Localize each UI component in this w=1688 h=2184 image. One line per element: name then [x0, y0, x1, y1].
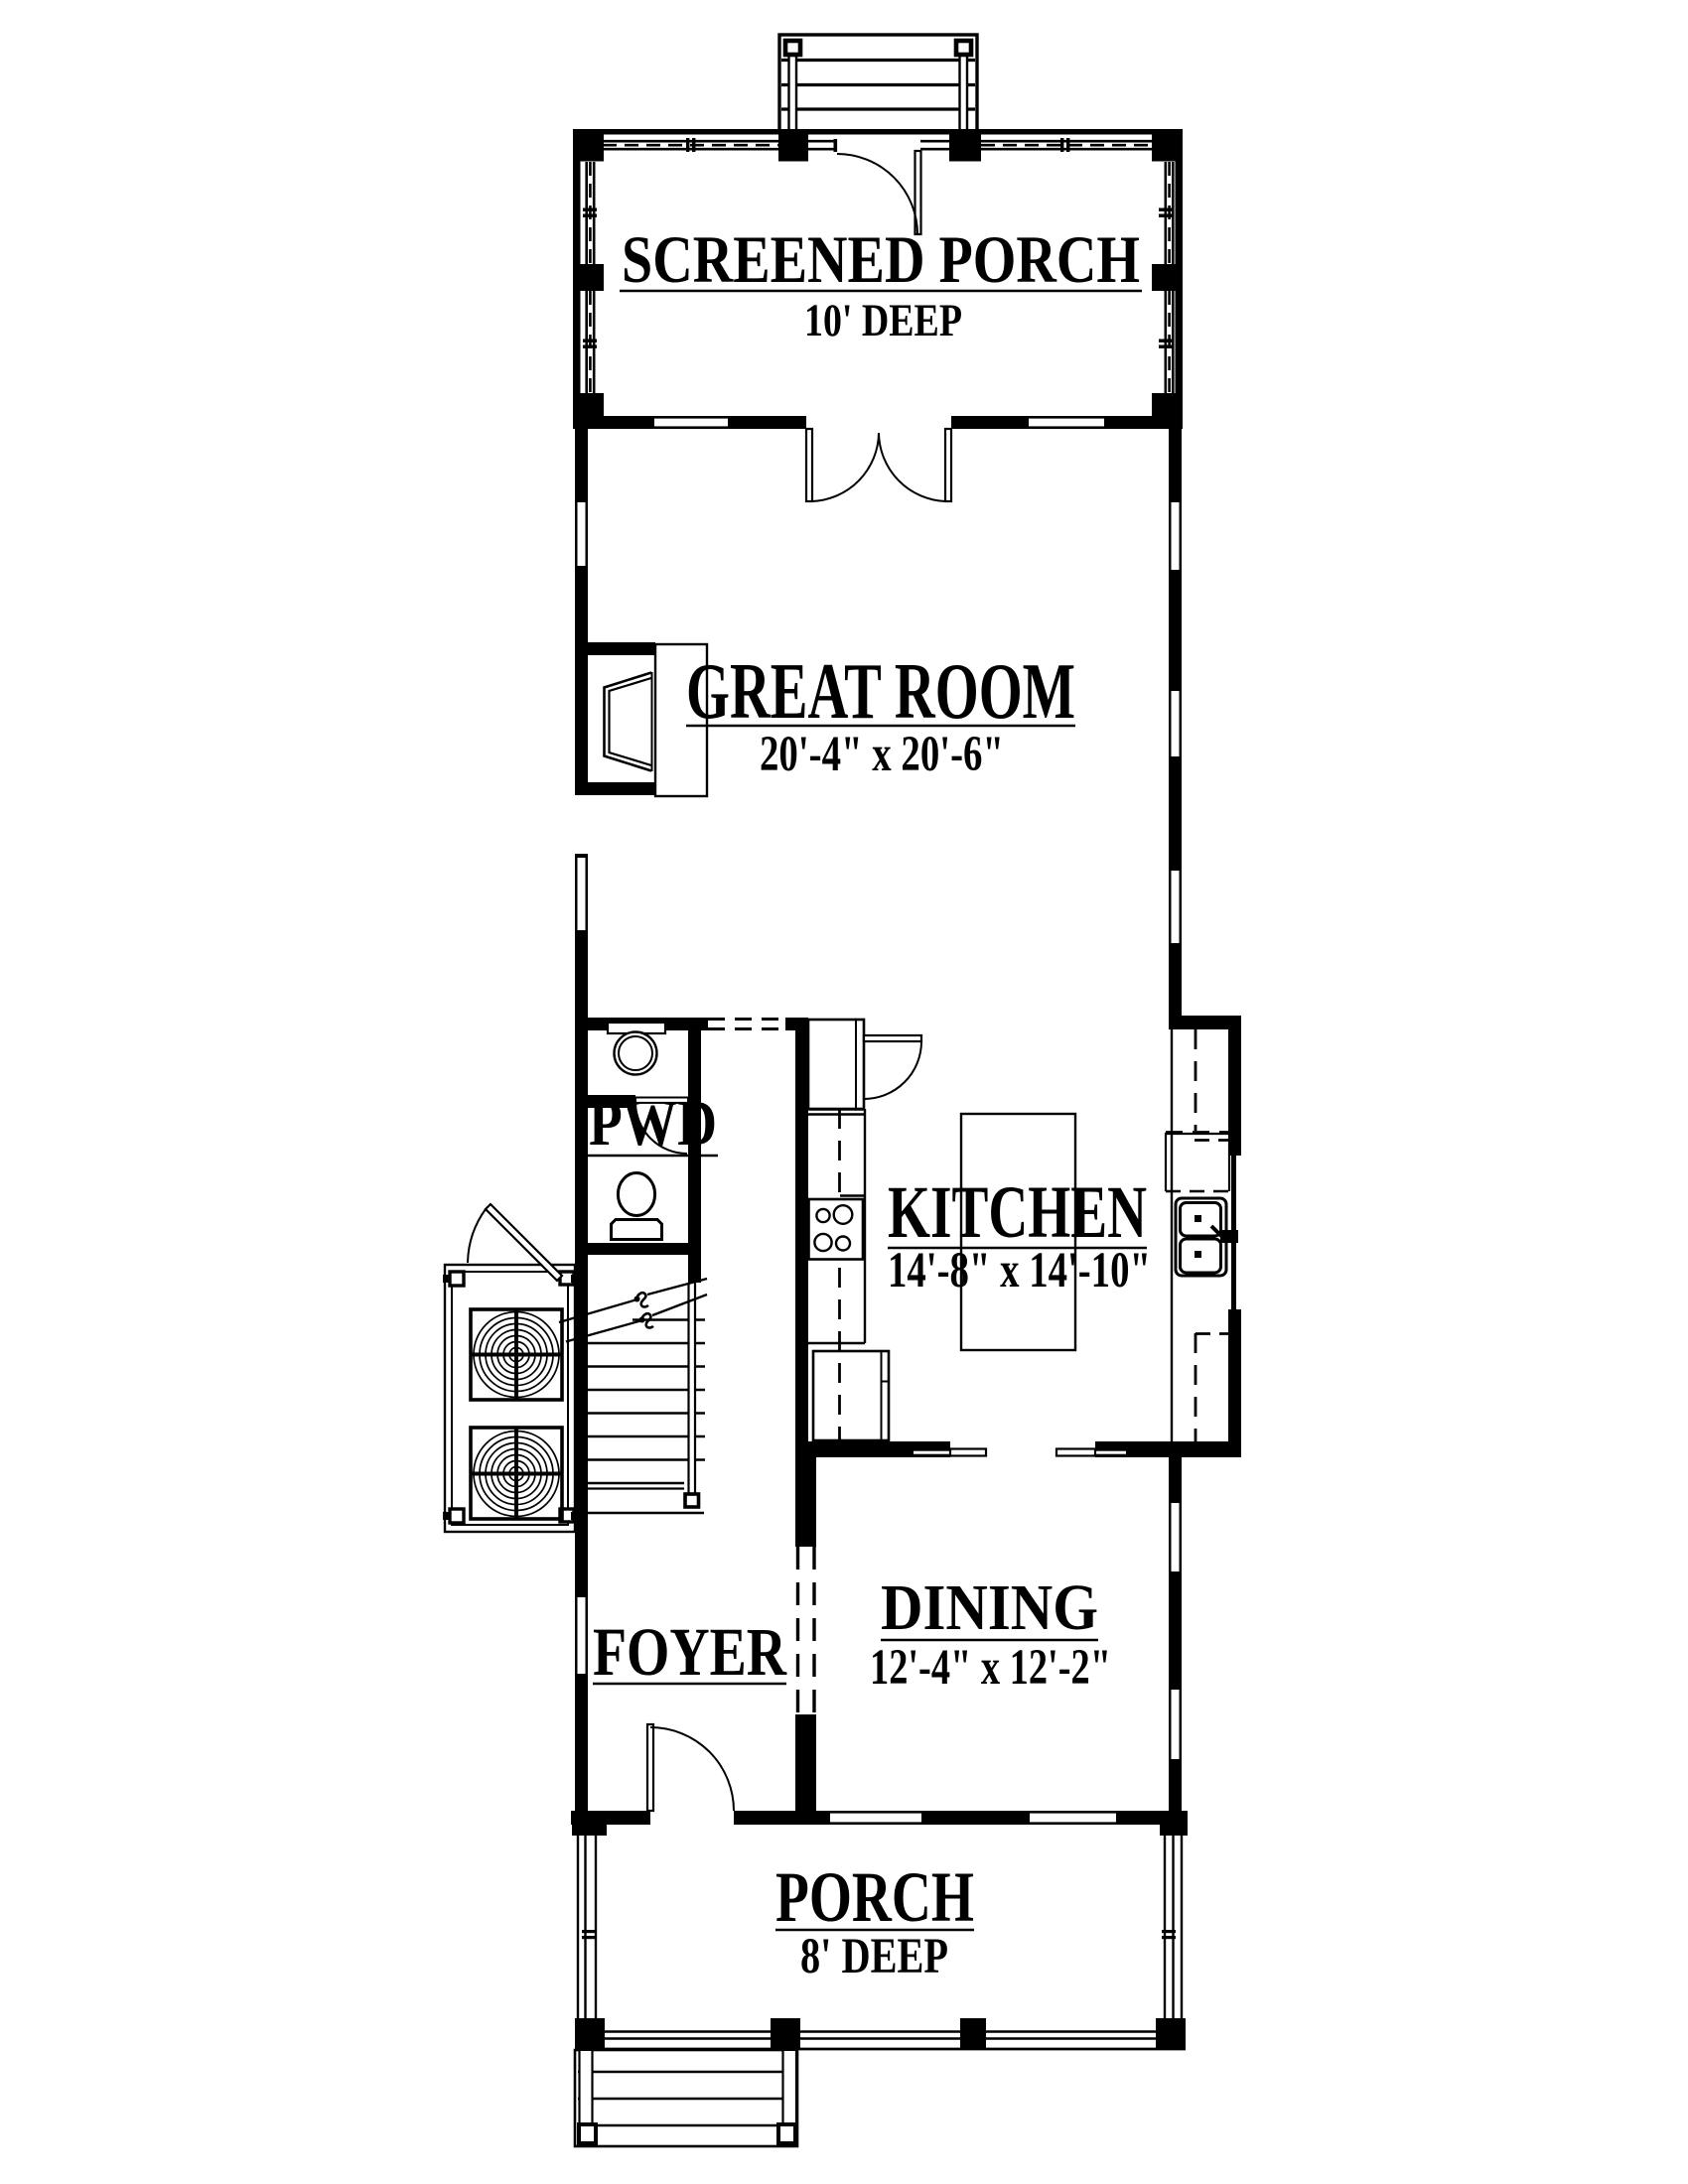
svg-text:8' DEEP: 8' DEEP [800, 1929, 948, 1984]
svg-text:10' DEEP: 10' DEEP [804, 295, 962, 346]
svg-text:GREAT ROOM: GREAT ROOM [686, 648, 1075, 736]
svg-text:KITCHEN: KITCHEN [888, 1171, 1147, 1254]
svg-text:DINING: DINING [881, 1571, 1098, 1644]
svg-text:12'-4" x 12'-2": 12'-4" x 12'-2" [870, 1640, 1111, 1696]
svg-text:FOYER: FOYER [593, 1614, 787, 1690]
svg-text:SCREENED PORCH: SCREENED PORCH [622, 221, 1140, 297]
svg-text:14'-8" x 14'-10": 14'-8" x 14'-10" [888, 1243, 1151, 1298]
svg-text:PORCH: PORCH [775, 1857, 974, 1937]
svg-text:PWD: PWD [589, 1087, 717, 1160]
svg-text:20'-4" x 20'-6": 20'-4" x 20'-6" [760, 727, 1004, 782]
